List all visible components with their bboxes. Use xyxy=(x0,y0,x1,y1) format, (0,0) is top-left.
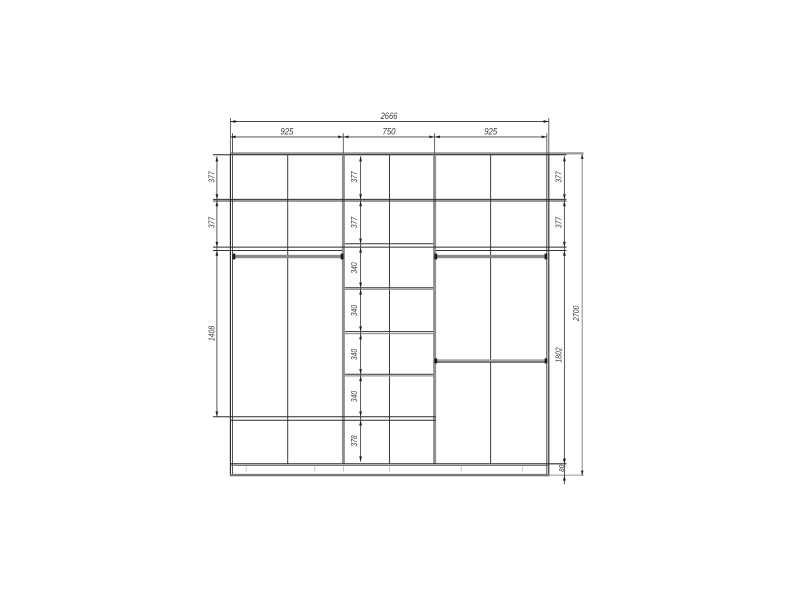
svg-text:377: 377 xyxy=(208,171,217,183)
svg-text:340: 340 xyxy=(350,348,359,360)
svg-text:377: 377 xyxy=(208,216,217,228)
svg-text:750: 750 xyxy=(383,126,396,136)
svg-text:925: 925 xyxy=(280,126,294,136)
svg-text:377: 377 xyxy=(350,171,359,183)
svg-text:2700: 2700 xyxy=(572,305,581,322)
svg-text:378: 378 xyxy=(350,435,359,447)
svg-text:377: 377 xyxy=(554,216,563,228)
svg-text:1802: 1802 xyxy=(554,347,563,363)
svg-text:340: 340 xyxy=(350,262,359,274)
svg-text:1408: 1408 xyxy=(208,325,217,341)
svg-text:340: 340 xyxy=(350,390,359,402)
svg-text:925: 925 xyxy=(484,126,498,136)
svg-text:377: 377 xyxy=(350,216,359,228)
svg-text:80: 80 xyxy=(557,464,566,472)
svg-text:340: 340 xyxy=(350,304,359,316)
svg-text:377: 377 xyxy=(554,171,563,183)
svg-text:2666: 2666 xyxy=(380,111,398,122)
